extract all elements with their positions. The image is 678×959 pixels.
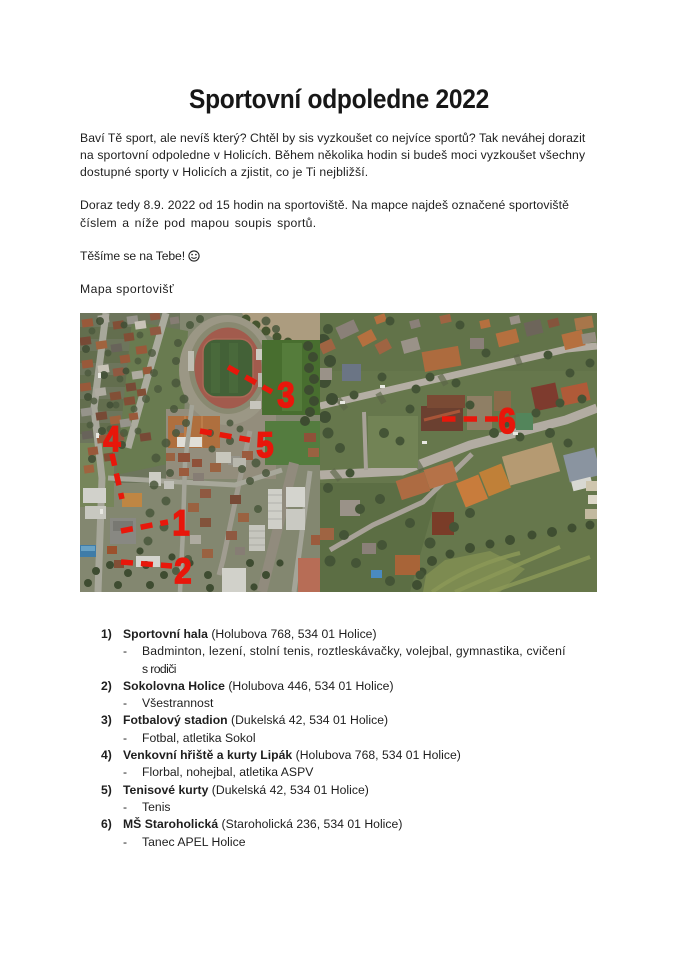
svg-text:6: 6: [498, 401, 515, 440]
svg-text:3: 3: [277, 375, 294, 414]
svg-text:4: 4: [103, 419, 121, 458]
svg-text:1: 1: [172, 503, 189, 542]
svg-text:2: 2: [174, 551, 191, 590]
svg-text:5: 5: [256, 425, 273, 464]
